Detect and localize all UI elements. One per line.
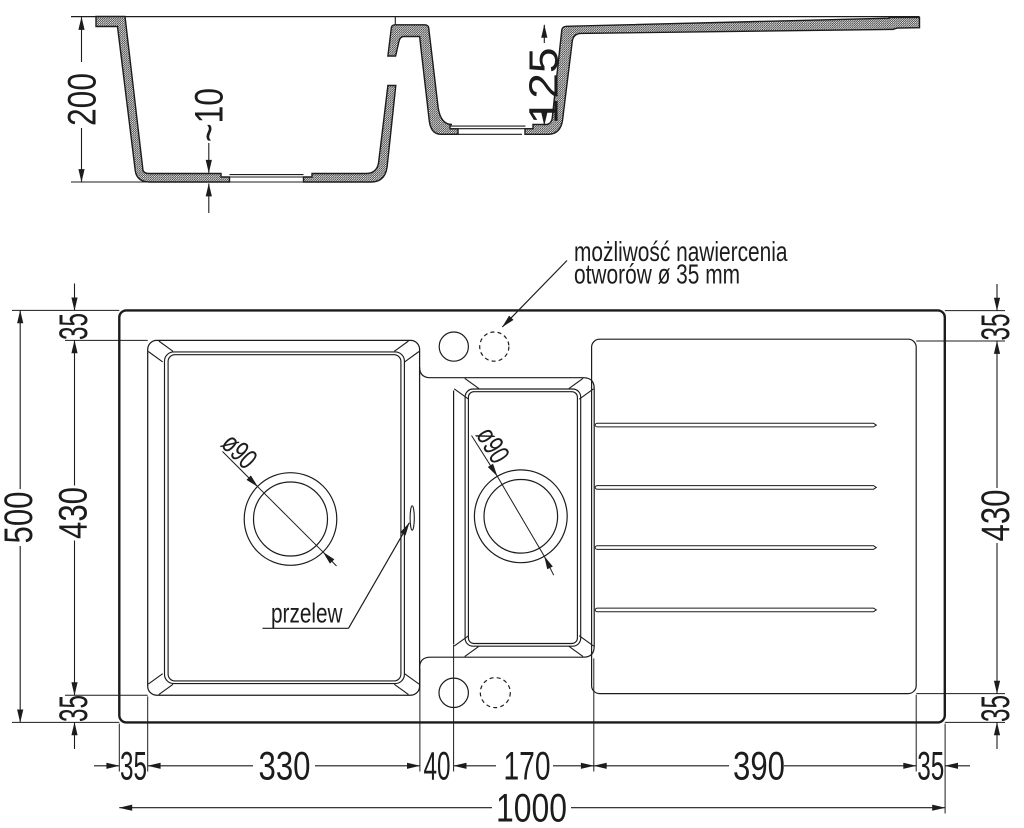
- svg-text:40: 40: [424, 745, 451, 789]
- svg-text:35: 35: [52, 695, 96, 722]
- svg-text:35: 35: [120, 745, 147, 789]
- svg-text:ø90: ø90: [469, 422, 515, 469]
- svg-text:35: 35: [974, 314, 1018, 341]
- svg-text:430: 430: [52, 487, 96, 539]
- svg-text:390: 390: [733, 745, 785, 789]
- svg-text:500: 500: [0, 492, 41, 544]
- svg-text:430: 430: [974, 490, 1018, 542]
- svg-text:200: 200: [61, 73, 105, 126]
- svg-text:330: 330: [259, 745, 311, 789]
- svg-text:35: 35: [917, 745, 944, 789]
- svg-text:ø90: ø90: [215, 428, 263, 476]
- svg-text:1000: 1000: [496, 787, 567, 828]
- svg-text:~10: ~10: [188, 88, 232, 142]
- svg-text:otworów ø 35 mm: otworów ø 35 mm: [574, 259, 740, 290]
- svg-text:35: 35: [974, 695, 1018, 722]
- svg-text:170: 170: [504, 745, 551, 789]
- svg-text:125: 125: [521, 47, 567, 124]
- svg-text:35: 35: [52, 313, 96, 340]
- svg-text:przelew: przelew: [271, 597, 343, 628]
